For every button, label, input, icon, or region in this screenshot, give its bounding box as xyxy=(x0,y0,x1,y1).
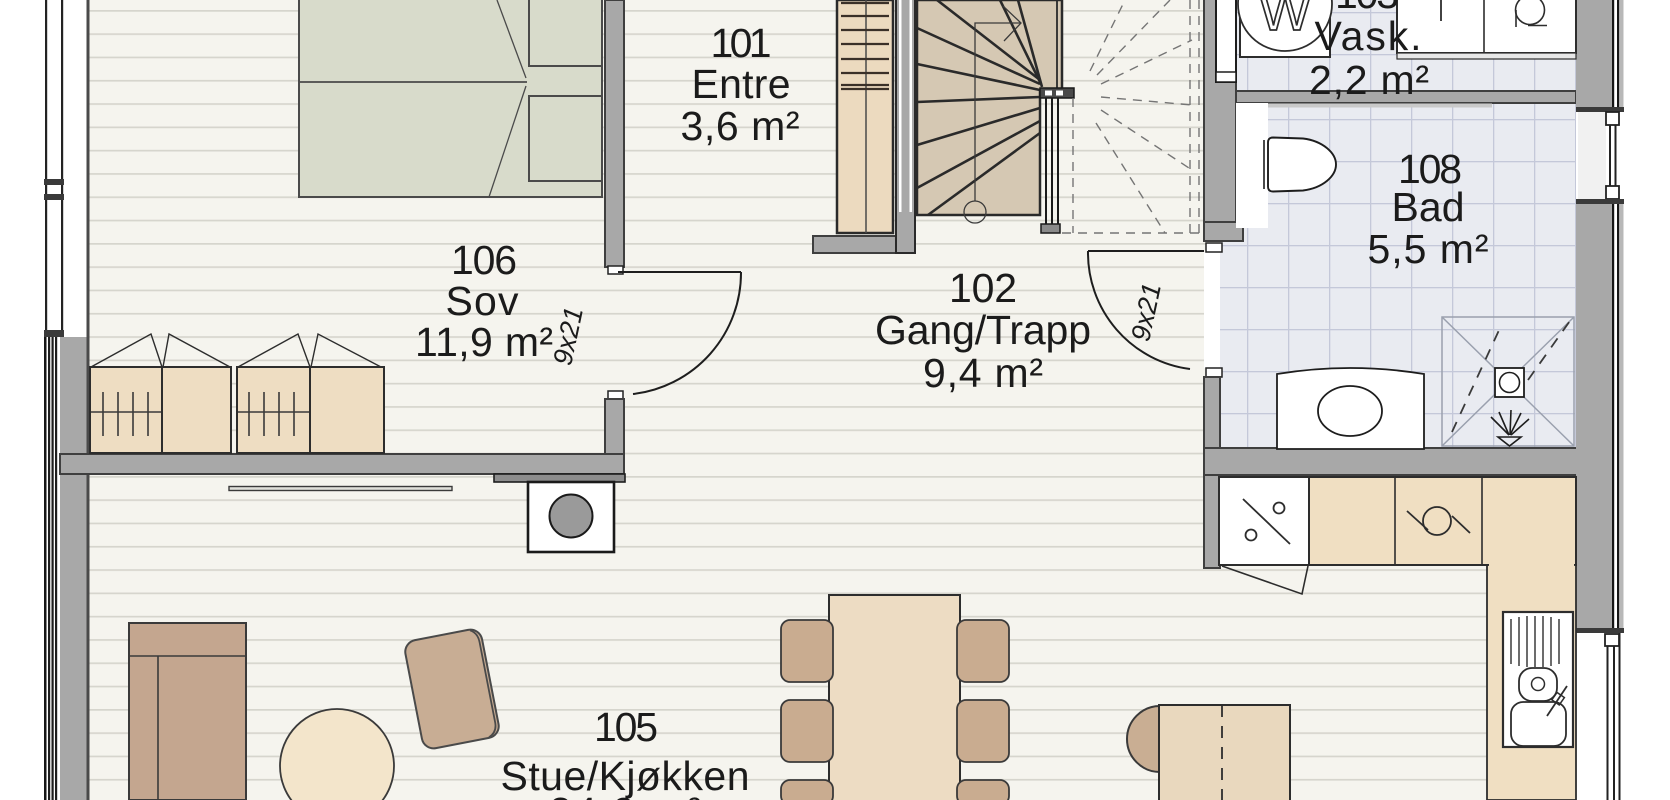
svg-text:Gang/Trapp: Gang/Trapp xyxy=(875,307,1091,353)
svg-text:106: 106 xyxy=(451,237,517,283)
svg-text:102: 102 xyxy=(949,265,1017,311)
svg-text:Bad: Bad xyxy=(1392,184,1465,230)
svg-text:24,9 m²: 24,9 m² xyxy=(549,789,701,800)
svg-text:9,4 m²: 9,4 m² xyxy=(923,350,1043,396)
svg-text:105: 105 xyxy=(594,704,658,750)
svg-text:W: W xyxy=(1259,0,1312,42)
svg-text:2,2 m²: 2,2 m² xyxy=(1309,57,1429,103)
svg-text:Vask.: Vask. xyxy=(1315,13,1422,59)
svg-text:Sov: Sov xyxy=(446,278,520,324)
svg-text:5,5 m²: 5,5 m² xyxy=(1368,226,1489,272)
svg-text:11,9 m²: 11,9 m² xyxy=(415,319,553,365)
svg-text:101: 101 xyxy=(711,20,772,66)
svg-text:3,6 m²: 3,6 m² xyxy=(681,103,800,149)
svg-text:Entre: Entre xyxy=(692,61,791,107)
